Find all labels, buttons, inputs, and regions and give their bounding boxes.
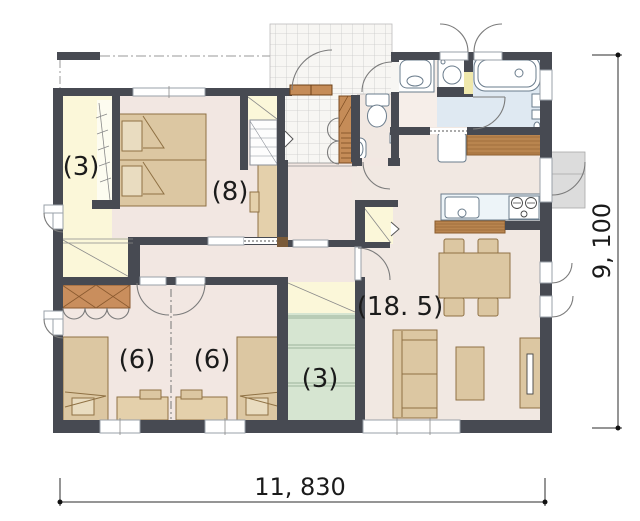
bath-top-door-arc-2 — [474, 24, 502, 52]
casement-arc-2 — [552, 296, 573, 317]
storage-east-wall-n — [355, 200, 365, 247]
bedrooms-center-post — [166, 277, 176, 285]
side-door-leaf-2 — [44, 311, 63, 319]
hall-closet-bottom-wall — [360, 242, 390, 248]
floor-plan: (3) (8) (6) (6) (3) (18. 5) 11, 830 9, 1… — [0, 0, 640, 521]
kitchen-end-wall — [505, 221, 543, 230]
toilet-door-opening — [362, 158, 388, 166]
casement-window-1 — [540, 262, 552, 283]
washer-drum — [443, 66, 461, 84]
desk-west — [117, 397, 168, 420]
top-left-stub — [57, 52, 100, 60]
partition-bottom-post — [166, 420, 176, 433]
toilet-south-stub-e — [388, 158, 400, 166]
toilet-west-wall — [351, 95, 360, 162]
dining-table — [439, 253, 510, 298]
bath-niche — [464, 72, 473, 94]
room-label-storage: (3) — [302, 364, 339, 394]
desk-shelf-east — [181, 390, 202, 399]
room-label-main-bedroom: (8) — [212, 177, 249, 207]
bedrooms-top-wall-e — [205, 277, 288, 285]
bedrooms-top-wall-w — [53, 277, 140, 285]
closet-below-wic — [63, 238, 133, 280]
dining-chair-1 — [444, 239, 464, 254]
wic-stub — [92, 200, 120, 209]
bedroom8-desk — [258, 162, 280, 240]
porch-side-door-opening — [391, 62, 399, 92]
right-wall — [540, 52, 552, 433]
side-door-leaf-1 — [44, 205, 63, 213]
bathtub-inner — [478, 60, 536, 87]
dim-dot-rb — [616, 426, 621, 431]
desk-east — [176, 397, 227, 420]
casement-window-2 — [540, 296, 552, 317]
washroom-south-wall-w — [390, 127, 430, 135]
bedroom8-sliding-door — [208, 237, 244, 245]
dim-dot-bl — [58, 500, 63, 505]
toilet-tank — [366, 94, 389, 106]
room-label-walk-in-closet: (3) — [63, 152, 100, 182]
bedroom-door-opening-w — [140, 277, 166, 285]
desk-shelf-west — [140, 390, 161, 399]
refrigerator — [438, 133, 466, 162]
bath-top-opening-1 — [440, 52, 468, 60]
hall-opening — [293, 240, 328, 247]
bath-top-opening-2 — [474, 52, 502, 60]
toilet-bowl — [368, 105, 387, 127]
dimension-height: 9, 100 — [588, 203, 616, 279]
wic-east-wall — [112, 96, 120, 206]
ldk-door-leaf — [355, 247, 361, 280]
porch-side-wall-n — [391, 52, 399, 62]
storage-west-wall — [277, 277, 288, 433]
dim-dot-br — [543, 500, 548, 505]
wall-counter — [467, 133, 543, 155]
window-ldk-south — [363, 420, 460, 433]
wall-post-brown — [277, 237, 288, 247]
casement-arc-1 — [552, 263, 572, 283]
hall-closet-top-wall — [365, 200, 398, 207]
bedroom8-desk-wall — [277, 160, 288, 247]
bedroom8-chair — [250, 192, 259, 212]
vanity-bowl — [407, 76, 423, 86]
pillow-2 — [122, 166, 142, 196]
genkan-west-wall — [277, 96, 285, 167]
dim-dot-rt — [616, 53, 621, 58]
floor-plan-drawing — [0, 0, 640, 521]
left-wall — [53, 88, 63, 433]
coffee-table — [456, 347, 484, 400]
dining-chair-4 — [478, 298, 498, 316]
sink-faucet — [458, 209, 466, 217]
washer-dial — [441, 60, 445, 64]
window-bathroom — [540, 70, 552, 100]
bath-top-door-arc-1 — [440, 24, 468, 52]
tv — [527, 354, 533, 394]
room-label-bedroom-east: (6) — [194, 345, 231, 375]
bedroom-door-opening-e — [176, 277, 205, 285]
back-door-opening — [540, 158, 552, 202]
toilet-south-stub-w — [352, 158, 362, 166]
closet-brown — [62, 285, 130, 308]
room-label-bedroom-west: (6) — [119, 345, 156, 375]
room-label-ldk: (18. 5) — [357, 292, 443, 322]
bathtub-drain — [515, 69, 523, 77]
entrance-porch-tiles — [270, 24, 392, 94]
bedroom8-east-wall — [240, 96, 248, 170]
dimension-width: 11, 830 — [254, 473, 346, 501]
dining-chair-2 — [478, 239, 498, 254]
bathroom-entry-floor — [437, 97, 473, 127]
pillow-1 — [122, 121, 142, 151]
dining-chair-3 — [444, 298, 464, 316]
